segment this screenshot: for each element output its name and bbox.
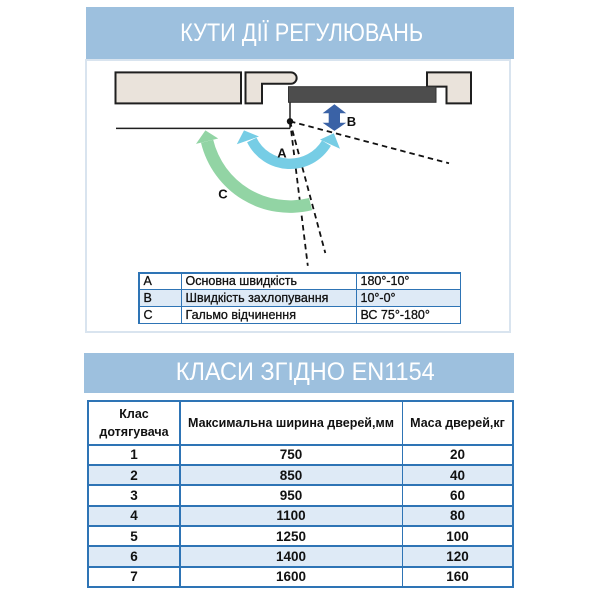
svg-text:A: A	[277, 145, 287, 160]
svg-text:C: C	[218, 186, 228, 201]
svg-text:B: B	[347, 114, 356, 129]
